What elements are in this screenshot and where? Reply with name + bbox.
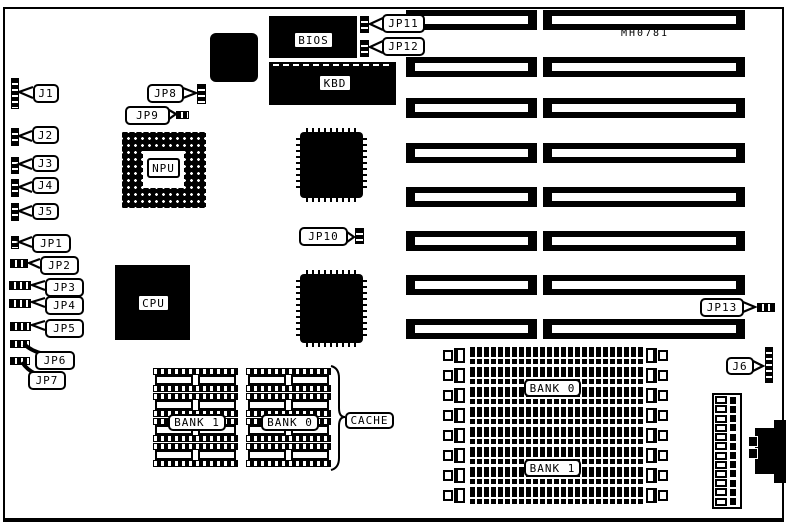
label-jp9: JP9	[125, 106, 170, 125]
leader-j4	[19, 182, 32, 192]
label-npu: NPU	[147, 158, 180, 178]
leader-j5	[19, 206, 32, 216]
label-jp1: JP1	[32, 234, 71, 253]
leader-j6	[753, 361, 763, 371]
label-jp2: JP2	[40, 256, 79, 275]
leader-j1	[19, 87, 33, 98]
label-simm-bank1: BANK 1	[524, 459, 581, 477]
leader-j2	[19, 131, 32, 141]
leader-jp8	[183, 88, 196, 98]
label-j5: J5	[32, 203, 59, 220]
label-jp10: JP10	[299, 227, 348, 246]
label-jp8: JP8	[147, 84, 184, 103]
leader-jp13	[743, 302, 755, 312]
label-bios: BIOS	[293, 31, 334, 49]
leader-jp5	[32, 321, 45, 330]
cache-brace	[331, 366, 345, 470]
label-jp3: JP3	[45, 278, 84, 297]
leader-jp9	[169, 110, 176, 119]
label-jp7: JP7	[28, 371, 66, 390]
label-j2: J2	[32, 126, 59, 144]
label-cache: CACHE	[345, 412, 394, 429]
label-cpu: CPU	[137, 294, 170, 312]
label-cache-bank0: BANK 0	[261, 414, 319, 431]
label-j3: J3	[32, 155, 59, 172]
motherboard-diagram: J1 J2 J3 J4 J5 JP1 JP2 JP3 JP4 JP5 JP6 J…	[0, 0, 791, 527]
leader-jp3	[32, 281, 45, 290]
leader-jp10	[347, 232, 354, 242]
label-jp6: JP6	[35, 351, 75, 370]
label-j6: J6	[726, 357, 754, 375]
leader-jp4	[32, 298, 45, 307]
leader-lines	[0, 0, 791, 527]
label-simm-bank0: BANK 0	[524, 379, 581, 397]
leader-j3	[19, 159, 32, 169]
label-jp12: JP12	[382, 37, 425, 56]
label-j1: J1	[33, 84, 59, 103]
label-jp11: JP11	[382, 14, 425, 33]
leader-jp1	[19, 237, 32, 247]
label-jp4: JP4	[45, 296, 84, 315]
label-jp13: JP13	[700, 298, 744, 317]
label-jp5: JP5	[45, 319, 84, 338]
label-j4: J4	[32, 177, 59, 194]
label-cache-bank1: BANK 1	[168, 414, 226, 431]
leader-jp2	[29, 259, 40, 268]
label-kbd: KBD	[318, 74, 352, 92]
